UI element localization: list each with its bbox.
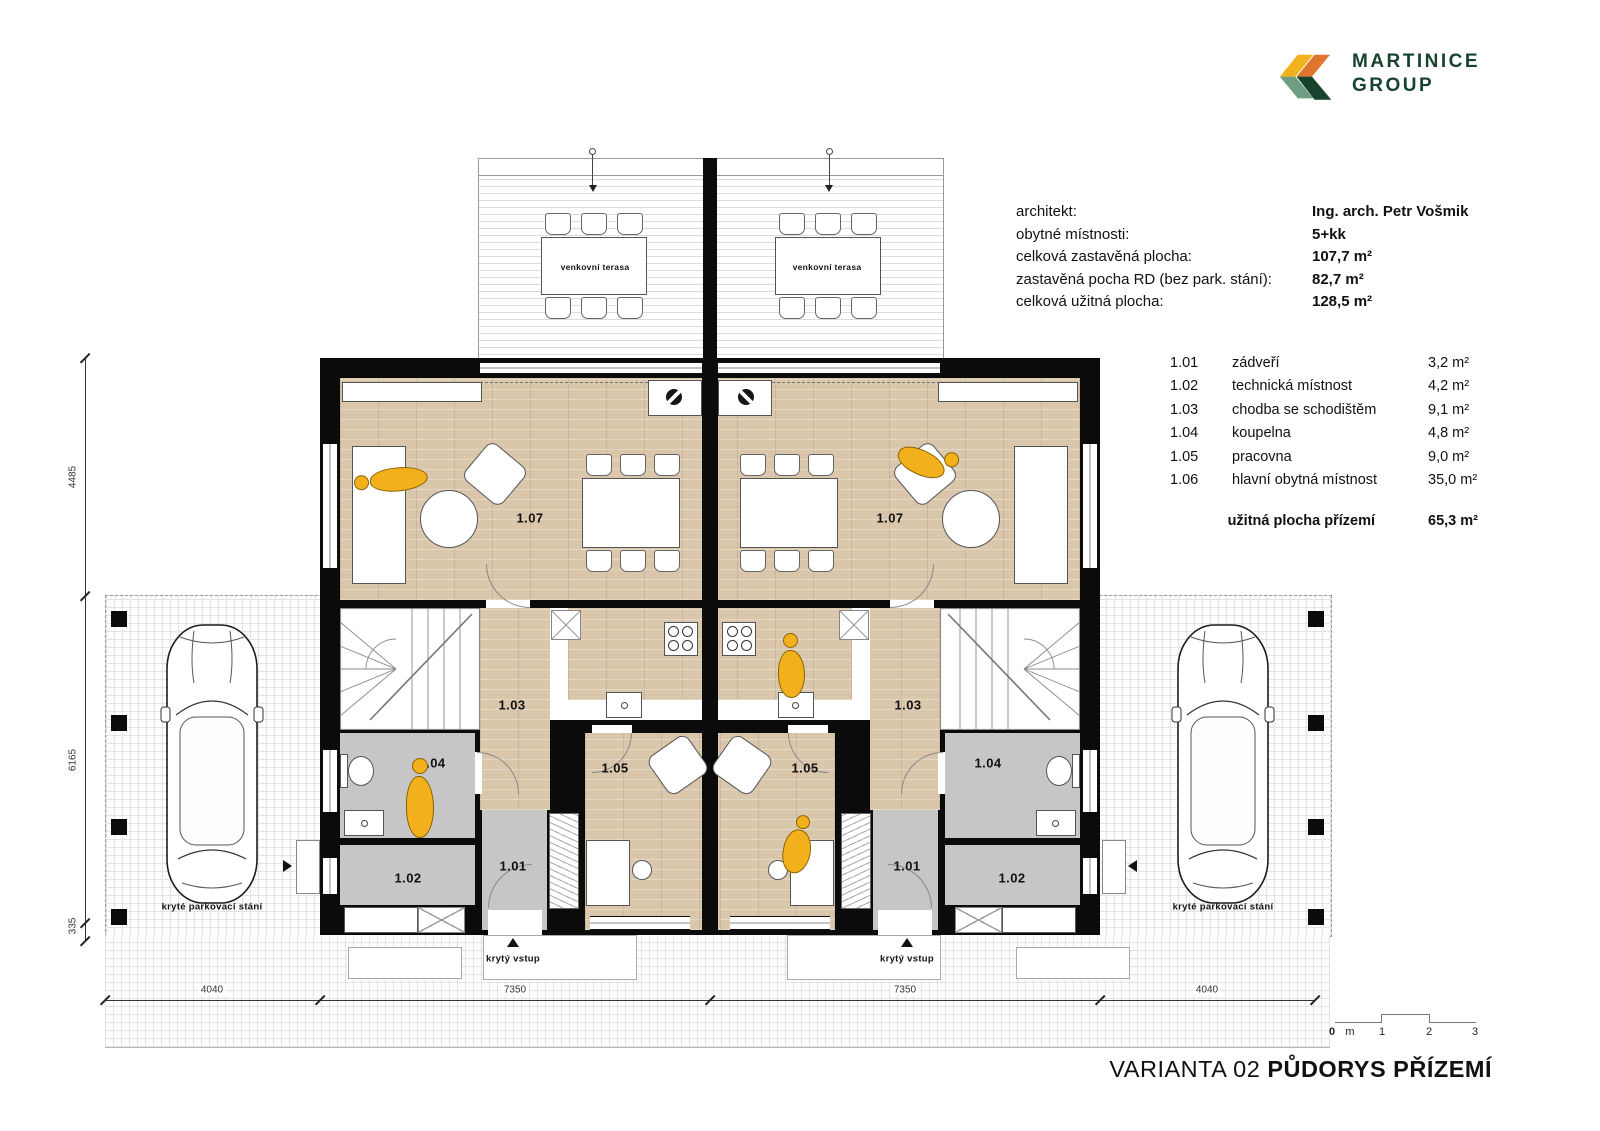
parking-right: kryté parkovací stání (1115, 595, 1330, 935)
sideboard (342, 382, 482, 402)
chair (815, 297, 841, 319)
room-area: 4,2 m² (1428, 378, 1469, 394)
room-name: technická místnost (1232, 378, 1352, 394)
washer (418, 907, 465, 933)
house-unit-left: 1.07 1.03 1.04 1.05 1.01 1.02 (320, 358, 710, 935)
info-label: obytné místnosti: (1016, 226, 1312, 243)
room-area: 35,0 m² (1428, 472, 1477, 488)
legend-row: 1.06hlavní obytná místnost35,0 m² (1170, 472, 1482, 495)
logo-text: MARTINICE GROUP (1352, 50, 1480, 98)
scale-mark: 3 (1472, 1026, 1478, 1038)
side-landing (1102, 840, 1126, 894)
info-label: celková užitná plocha: (1016, 293, 1312, 310)
parking-label: kryté parkovací stání (162, 902, 263, 913)
info-row: obytné místnosti:5+kk (1016, 226, 1496, 249)
terrace-label: venkovní terasa (561, 262, 630, 272)
chair (620, 454, 646, 476)
legend-row: 1.05pracovna9,0 m² (1170, 449, 1482, 472)
info-row: celková zastavěná plocha:107,7 m² (1016, 248, 1496, 271)
scale-segment (1430, 1014, 1476, 1023)
scale-bar (1335, 1014, 1476, 1023)
column (1308, 909, 1324, 925)
room-label-bath: 1.04 (975, 756, 1002, 771)
faucet-icon (621, 702, 628, 709)
chair (654, 454, 680, 476)
door-opening (788, 725, 828, 733)
faucet-icon (361, 820, 368, 827)
coffee-table (942, 490, 1000, 548)
stove-burner-icon (682, 640, 693, 651)
bath-sink (344, 810, 384, 836)
faucet-icon (792, 702, 799, 709)
variant-label: VARIANTA 02 (1109, 1056, 1260, 1082)
dimension-label: 4040 (198, 985, 226, 996)
chair (774, 550, 800, 572)
legend-row: 1.02technická místnost4,2 m² (1170, 378, 1482, 401)
column (1308, 715, 1324, 731)
person-figure (349, 448, 435, 514)
chair (808, 454, 834, 476)
stove-burner-icon (668, 626, 679, 637)
info-row: zastavěná pocha RD (bez park. stání):82,… (1016, 271, 1496, 294)
bench (344, 907, 418, 933)
info-value: 5+kk (1312, 226, 1346, 243)
room-label-entry: 1.01 (500, 859, 527, 874)
toilet-icon (348, 756, 374, 786)
arrow-down-icon (589, 185, 597, 192)
car-top-view (160, 621, 264, 907)
info-label: celková zastavěná plocha: (1016, 248, 1312, 265)
info-label: zastavěná pocha RD (bez park. stání): (1016, 271, 1312, 288)
scale-zero: 0 (1329, 1026, 1335, 1038)
arrow-right-icon (283, 860, 292, 872)
room-name: chodba se schodištěm (1232, 402, 1376, 418)
sofa (1014, 446, 1068, 584)
toilet-tank (340, 754, 348, 788)
room-area: 4,8 m² (1428, 425, 1469, 441)
scale-unit: m (1345, 1026, 1354, 1038)
window (322, 444, 338, 568)
info-value: Ing. arch. Petr Vošmik (1312, 203, 1468, 220)
sink-icon (738, 389, 754, 405)
room-legend: 1.01zádveří3,2 m² 1.02technická místnost… (1170, 355, 1482, 537)
info-row: architekt:Ing. arch. Petr Vošmik (1016, 203, 1496, 226)
window (590, 916, 690, 930)
paved-walkway (105, 935, 1330, 1048)
stove-burner-icon (741, 640, 752, 651)
car-top-view (1171, 621, 1275, 907)
side-door (1082, 858, 1098, 894)
chair (581, 297, 607, 319)
room-area: 9,0 m² (1428, 449, 1469, 465)
info-row: celková užitná plocha:128,5 m² (1016, 293, 1496, 316)
terrace-left: venkovní terasa (478, 158, 710, 370)
stove-burner-icon (741, 626, 752, 637)
door-opening (592, 725, 632, 733)
staircase (940, 608, 1080, 730)
room-area: 9,1 m² (1428, 402, 1469, 418)
info-label: architekt: (1016, 203, 1312, 220)
scale-mark: 1 (1379, 1026, 1385, 1038)
terrace-table: venkovní terasa (541, 237, 647, 295)
sideboard (938, 382, 1078, 402)
room-label-tech: 1.02 (395, 871, 422, 886)
person-body (893, 441, 949, 484)
stove-burner-icon (682, 626, 693, 637)
legend-row: 1.01zádveří3,2 m² (1170, 355, 1482, 378)
arrow-down-icon (825, 185, 833, 192)
room-label-entry: 1.01 (894, 859, 921, 874)
stove-burner-icon (727, 640, 738, 651)
chair (617, 213, 643, 235)
person-head (942, 450, 962, 470)
total-label: užitná plocha přízemí (1170, 513, 1375, 529)
chair (586, 454, 612, 476)
room-name: hlavní obytná místnost (1232, 472, 1377, 488)
dining-table (740, 478, 838, 548)
entry-door-opening (878, 910, 932, 935)
entry-triangle-icon (507, 938, 519, 947)
side-pad-right (1016, 947, 1130, 979)
info-value: 128,5 m² (1312, 293, 1372, 310)
person-head (783, 633, 798, 648)
room-label-hall: 1.03 (895, 698, 922, 713)
room-number: 1.03 (1170, 402, 1198, 418)
chair (740, 550, 766, 572)
stove (722, 622, 756, 656)
chair (545, 297, 571, 319)
dimension-label: 4485 (68, 463, 79, 491)
room-number: 1.06 (1170, 472, 1198, 488)
chair (851, 297, 877, 319)
terrace-glazing (718, 362, 940, 374)
person-figure (398, 756, 444, 848)
dimension-label: 6165 (68, 746, 79, 774)
entry-arrow-line (829, 155, 830, 187)
window (730, 916, 830, 930)
chair (779, 297, 805, 319)
column (111, 819, 127, 835)
person-head (353, 474, 369, 490)
window (322, 750, 338, 812)
column (1308, 819, 1324, 835)
total-area: 65,3 m² (1428, 513, 1478, 529)
chair (774, 454, 800, 476)
room-number: 1.02 (1170, 378, 1198, 394)
room-label-office: 1.05 (602, 761, 629, 776)
tall-cabinet (551, 610, 581, 640)
room-label-tech: 1.02 (999, 871, 1026, 886)
terrace-label: venkovní terasa (793, 262, 862, 272)
entry-marker-icon (826, 148, 833, 155)
entry-marker-icon (589, 148, 596, 155)
room-number: 1.05 (1170, 449, 1198, 465)
martinice-group-logo-icon (1276, 46, 1348, 102)
chair (654, 550, 680, 572)
column (1308, 611, 1324, 627)
dimension-line-left (85, 358, 86, 941)
scale-mark: 2 (1426, 1026, 1432, 1038)
sheet-title: VARIANTA 02 PŮDORYS PŘÍZEMÍ (1109, 1056, 1492, 1083)
dimension-label: 7350 (891, 985, 919, 996)
scale-segment (1381, 1014, 1429, 1023)
bath-sink (1036, 810, 1076, 836)
stove-burner-icon (727, 626, 738, 637)
tall-cabinet (839, 610, 869, 640)
desk-chair (632, 860, 652, 880)
side-pad-left (348, 947, 462, 979)
terrace-right: venkovní terasa (712, 158, 944, 370)
room-name: pracovna (1232, 449, 1292, 465)
person-head (795, 814, 812, 831)
toilet-icon (1046, 756, 1072, 786)
entry-label-right: krytý vstup (880, 954, 934, 965)
party-wall-terrace (703, 158, 717, 370)
bench (1002, 907, 1076, 933)
legend-total: užitná plocha přízemí65,3 m² (1170, 513, 1482, 537)
entry-label-left: krytý vstup (486, 954, 540, 965)
column (111, 909, 127, 925)
column (111, 611, 127, 627)
chair (740, 454, 766, 476)
drawing-name: PŮDORYS PŘÍZEMÍ (1267, 1056, 1492, 1082)
person-body (406, 776, 434, 838)
chair (617, 297, 643, 319)
entry-triangle-icon (901, 938, 913, 947)
stove-burner-icon (668, 640, 679, 651)
wardrobe (841, 813, 871, 909)
room-label-living: 1.07 (517, 511, 544, 526)
scale-segment (1335, 1014, 1381, 1023)
entry-door-opening (488, 910, 542, 935)
arrow-left-icon (1128, 860, 1137, 872)
dimension-label: 7350 (501, 985, 529, 996)
parking-left: kryté parkovací stání (105, 595, 320, 935)
staircase (340, 608, 480, 730)
chair (545, 213, 571, 235)
logo-line2: GROUP (1352, 74, 1480, 98)
project-info: architekt:Ing. arch. Petr Vošmik obytné … (1016, 203, 1496, 316)
chair (581, 213, 607, 235)
side-landing (296, 840, 320, 894)
legend-row: 1.04koupelna4,8 m² (1170, 425, 1482, 448)
chair (808, 550, 834, 572)
column (111, 715, 127, 731)
entry-arrow-line (592, 155, 593, 187)
room-area: 3,2 m² (1428, 355, 1469, 371)
chair (779, 213, 805, 235)
terrace-edge (479, 159, 709, 176)
wardrobe (549, 813, 579, 909)
drawing-sheet: MARTINICE GROUP architekt:Ing. arch. Pet… (0, 0, 1600, 1131)
info-value: 82,7 m² (1312, 271, 1364, 288)
dimension-label: 335 (68, 915, 79, 938)
logo-line1: MARTINICE (1352, 50, 1480, 74)
chair (586, 550, 612, 572)
toilet-tank (1072, 754, 1080, 788)
terrace-table: venkovní terasa (775, 237, 881, 295)
person-body (778, 650, 805, 698)
room-number: 1.04 (1170, 425, 1198, 441)
person-figure (770, 632, 814, 702)
room-label-office: 1.05 (792, 761, 819, 776)
person-body (779, 827, 816, 876)
side-door (322, 858, 338, 894)
window (1082, 750, 1098, 812)
kitchen-sink (606, 692, 642, 718)
room-label-living: 1.07 (877, 511, 904, 526)
washer (955, 907, 1002, 933)
legend-row: 1.03chodba se schodištěm9,1 m² (1170, 402, 1482, 425)
dimension-label: 4040 (1193, 985, 1221, 996)
sink-icon (666, 389, 682, 405)
terrace-glazing (480, 362, 702, 374)
room-name: zádveří (1232, 355, 1280, 371)
room-label-hall: 1.03 (499, 698, 526, 713)
person-head (412, 758, 428, 774)
info-value: 107,7 m² (1312, 248, 1372, 265)
dining-table (582, 478, 680, 548)
window (1082, 444, 1098, 568)
chair (620, 550, 646, 572)
faucet-icon (1052, 820, 1059, 827)
chair (815, 213, 841, 235)
desk (586, 840, 630, 906)
room-number: 1.01 (1170, 355, 1198, 371)
person-body (369, 464, 429, 494)
room-name: koupelna (1232, 425, 1291, 441)
parking-label: kryté parkovací stání (1173, 902, 1274, 913)
chair (851, 213, 877, 235)
